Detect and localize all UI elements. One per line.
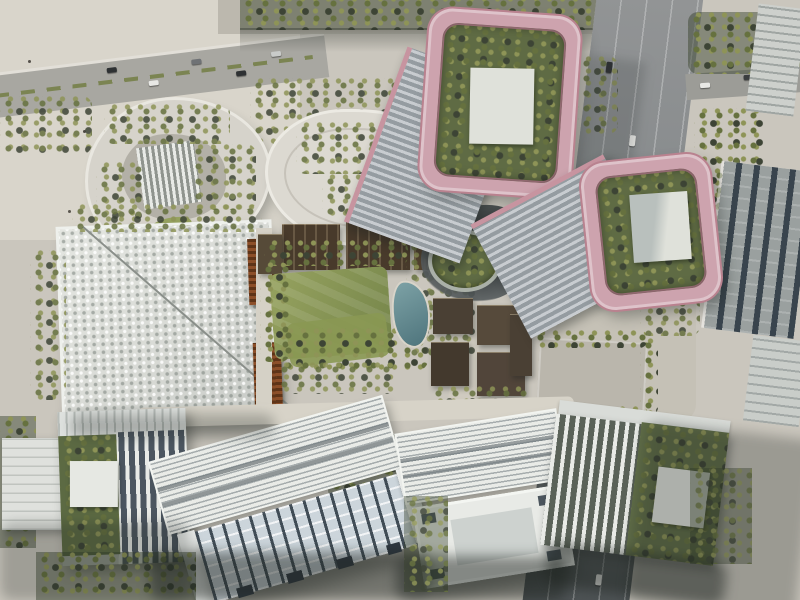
- e-white-building-2: [743, 335, 800, 427]
- trees-nw-corner: [0, 96, 92, 154]
- car: [148, 80, 159, 86]
- car: [107, 67, 118, 73]
- teardrop-roof-trees-n: [104, 104, 230, 144]
- car: [191, 59, 202, 65]
- village-building: [433, 298, 473, 334]
- village-building: [431, 342, 469, 386]
- trees-south-2: [404, 496, 448, 592]
- sw-roof-pavilion: [70, 461, 118, 507]
- towerA-roof-pad: [469, 68, 534, 145]
- trees-canopy-north: [72, 204, 262, 232]
- shadow-se-big: [626, 420, 800, 600]
- east-plaza-trees-n: [532, 330, 648, 348]
- pedestrian-dots: [28, 60, 31, 63]
- teardrop-roof-trees-e: [190, 144, 256, 210]
- trees-canopy-west: [30, 250, 66, 400]
- car: [236, 70, 247, 76]
- car: [700, 83, 710, 89]
- towerB-roof: [579, 152, 724, 313]
- towerA-roof: [418, 7, 582, 199]
- shadow-slab1: [150, 552, 430, 600]
- canopy-hall: [59, 222, 276, 425]
- park-trees-north-row: [264, 240, 408, 266]
- towerB-roof-pad: [629, 191, 692, 263]
- masterplan-aerial-view: [0, 0, 800, 600]
- shadow-sw-corner: [0, 522, 190, 600]
- shadow-canopy-south: [70, 414, 275, 438]
